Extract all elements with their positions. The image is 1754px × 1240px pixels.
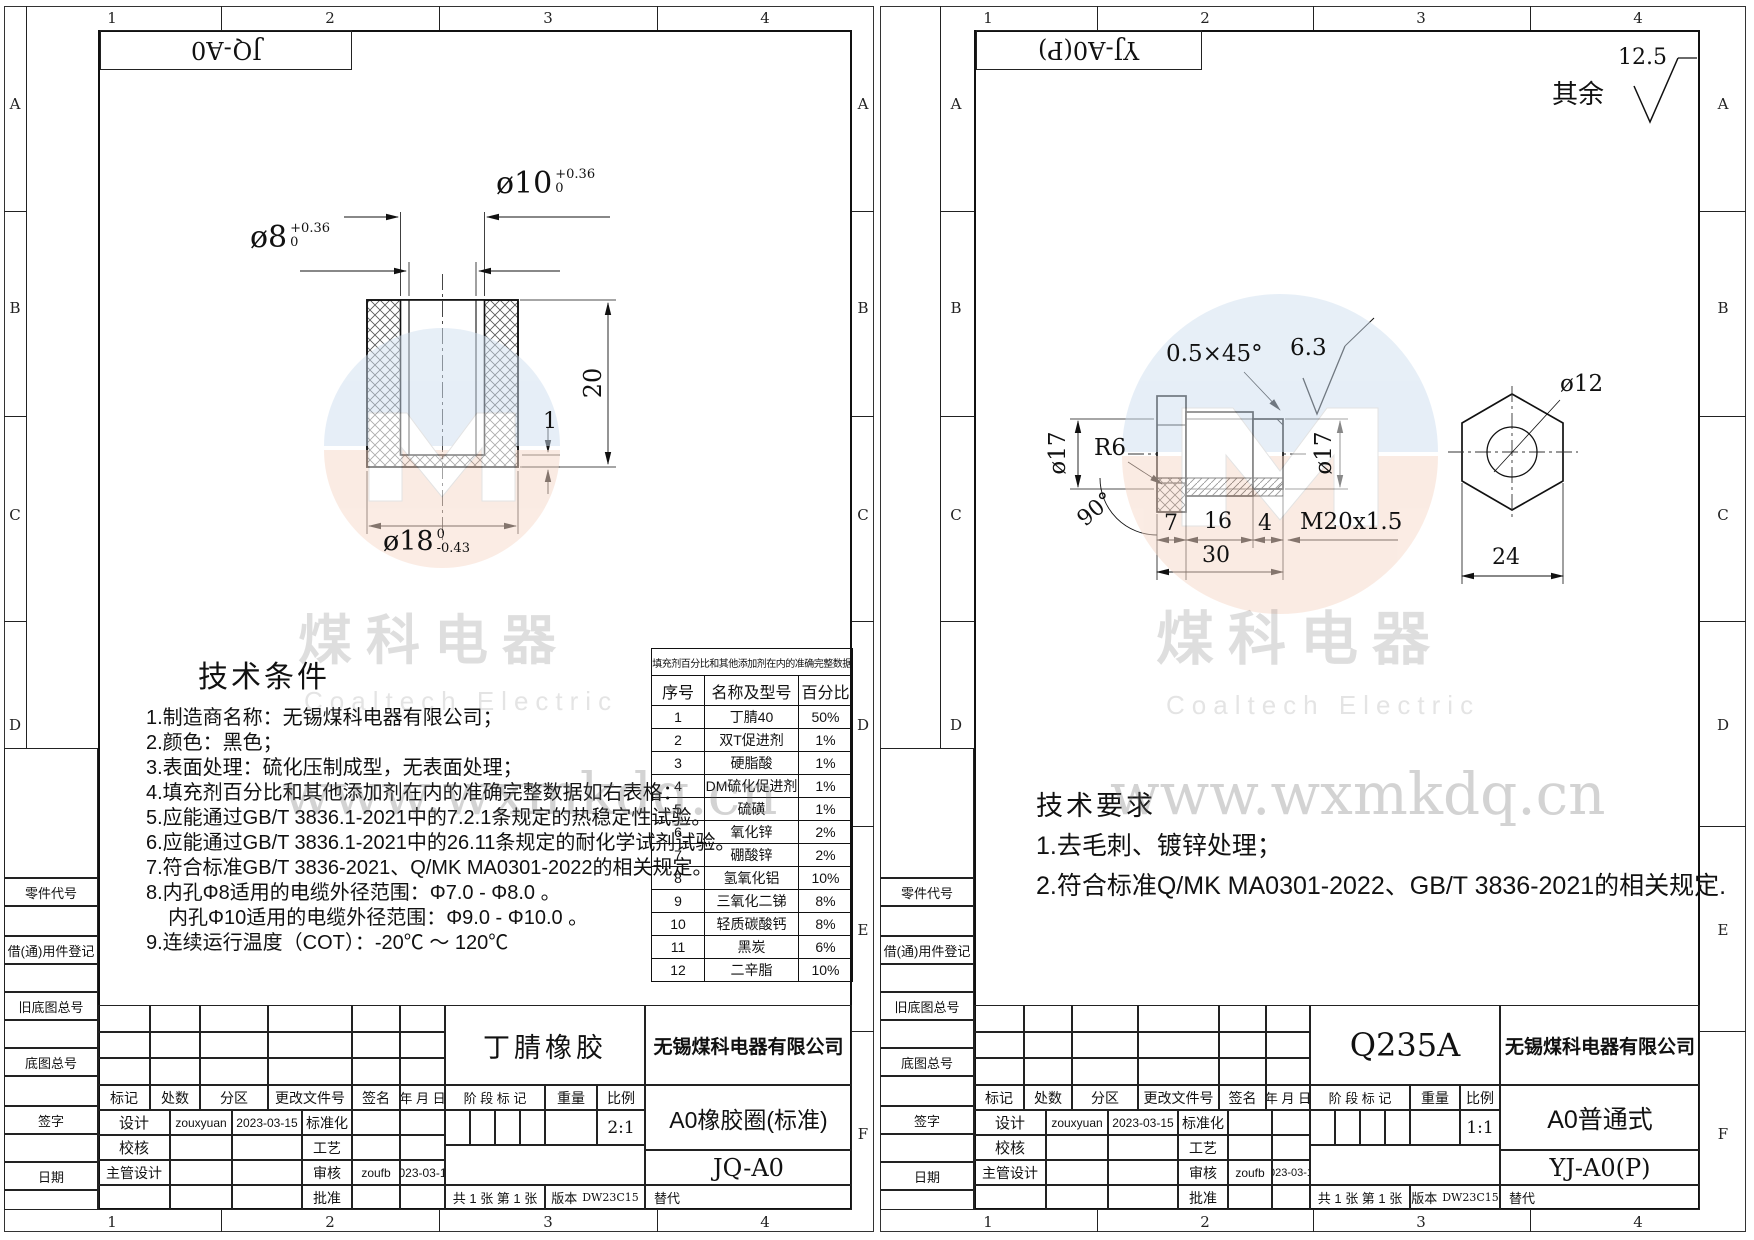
dim-r6: R6: [1094, 436, 1126, 460]
zone-tick: [439, 6, 440, 30]
dim-d18: ø18 0-0.43: [383, 528, 470, 556]
rev-header: 签名: [352, 1085, 400, 1110]
zone-col-label: 3: [538, 1212, 558, 1232]
zone-row-label: E: [853, 920, 873, 940]
sign-cell: 2023-03-15: [232, 1110, 302, 1135]
watermark-logo-en: Coaltech Electric: [304, 686, 618, 717]
rev-cell: [1219, 1032, 1266, 1058]
stage-cell: [520, 1110, 545, 1145]
sign-cell: 工艺: [1178, 1135, 1228, 1160]
sign-cell: 审核: [1178, 1160, 1228, 1185]
stage-cell: [1310, 1110, 1335, 1145]
sign-cell: [1272, 1185, 1310, 1210]
stage-cell: [445, 1110, 470, 1145]
filler-col-header: 百分比: [799, 676, 853, 706]
left-sheet-title-tab: JQ-A0: [100, 30, 352, 70]
scale-label: 比例: [1460, 1085, 1500, 1110]
sign-cell: 标准化: [302, 1110, 352, 1135]
zone-tick: [940, 211, 974, 212]
sign-cell: [352, 1185, 400, 1210]
filler-table-title: 填充剂百分比和其他添加剂在内的准确完整数据: [652, 649, 853, 676]
zone-col-label: 1: [978, 8, 998, 28]
company-name: 无锡煤科电器有限公司: [1500, 1005, 1700, 1085]
sign-cell: [1108, 1160, 1178, 1185]
rev-header: 更改文件号: [268, 1085, 352, 1110]
zone-row-label: B: [5, 298, 25, 318]
zone-row-label: D: [946, 715, 966, 735]
sign-cell: [232, 1185, 302, 1210]
sign-cell: [1228, 1135, 1272, 1160]
zone-col-label: 1: [102, 8, 122, 28]
zone-tick: [221, 1210, 222, 1232]
zone-tick: [657, 6, 658, 30]
dim-16: 16: [1204, 510, 1232, 533]
margin-box-empty: [880, 906, 974, 936]
margin-box-empty: [880, 1076, 974, 1106]
stage-cell: [1335, 1110, 1360, 1145]
watermark-site-url: www.wxmkdq.cn: [282, 760, 778, 828]
rev-cell: [98, 1032, 150, 1058]
scale-value: 1:1: [1460, 1110, 1500, 1145]
zone-col-label: 2: [320, 8, 340, 28]
rev-cell: [200, 1005, 268, 1032]
sign-cell: 校核: [98, 1135, 170, 1160]
zone-col-label: 4: [755, 8, 775, 28]
sign-cell: 设计: [974, 1110, 1046, 1135]
dim-d12: ø12: [1560, 372, 1603, 396]
weight-value: [545, 1110, 597, 1145]
zone-row-label: A: [853, 94, 873, 114]
sign-cell: [1046, 1160, 1108, 1185]
zone-row-label: A: [1713, 94, 1733, 114]
dim-7: 7: [1164, 512, 1178, 535]
margin-label-master-no: 底图总号: [880, 1048, 974, 1076]
watermark-site-url: www.wxmkdq.cn: [1110, 760, 1606, 828]
margin-label-date: 日期: [4, 1162, 98, 1190]
empty-box: [445, 1145, 645, 1185]
rev-header: 分区: [200, 1085, 268, 1110]
zone-col-label: 4: [1628, 1212, 1648, 1232]
rev-header: 处数: [1024, 1085, 1072, 1110]
zone-row-label: B: [853, 298, 873, 318]
stage-cell: [1360, 1110, 1385, 1145]
zone-tick: [1313, 1210, 1314, 1232]
drawing-sheet-pair: 1 2 3 4 1 2 3 4 A B C D A B C D E F JQ-A…: [0, 0, 1754, 1240]
stage-cell: [1385, 1110, 1410, 1145]
rev-cell: [1219, 1058, 1266, 1085]
product-name: A0橡胶圈(标准): [645, 1085, 852, 1150]
sign-cell: 2023-03-15: [1108, 1110, 1178, 1135]
zone-tick: [1313, 6, 1314, 30]
right-sheet-margin-line: [940, 6, 941, 748]
left-tab-code: JQ-A0: [191, 36, 262, 64]
filler-col-header: 名称及型号: [705, 676, 799, 706]
surface-rest-label: 其余: [1552, 74, 1604, 111]
rev-header: 更改文件号: [1138, 1085, 1219, 1110]
zone-tick: [657, 1210, 658, 1232]
rev-cell: [1266, 1032, 1310, 1058]
weight-label: 重量: [545, 1085, 597, 1110]
sign-cell: zouxyuan: [170, 1110, 232, 1135]
stage-cell: [470, 1110, 495, 1145]
empty-box: [1310, 1145, 1500, 1185]
margin-label-signature: 签字: [880, 1106, 974, 1134]
dim-roughness-6-3: 6.3: [1290, 336, 1327, 360]
table-row: 12二辛脂10%: [652, 959, 853, 982]
rev-cell: [400, 1032, 445, 1058]
sign-cell: [1046, 1185, 1108, 1210]
dim-30: 30: [1202, 544, 1230, 567]
zone-tick: [221, 6, 222, 30]
rev-cell: [268, 1005, 352, 1032]
sign-cell: 审核: [302, 1160, 352, 1185]
rev-cell: [98, 1058, 150, 1085]
zone-col-label: 2: [320, 1212, 340, 1232]
zone-tick: [4, 416, 26, 417]
sign-cell: [98, 1185, 170, 1210]
zone-col-label: 1: [978, 1212, 998, 1232]
sign-cell: 工艺: [302, 1135, 352, 1160]
margin-label-date: 日期: [880, 1162, 974, 1190]
replace-cell: 替代: [645, 1185, 852, 1210]
dim-d17-right: ø17: [1311, 423, 1337, 483]
sign-cell: [1272, 1110, 1310, 1135]
sign-cell: [1046, 1135, 1108, 1160]
zone-row-label: D: [853, 715, 873, 735]
version-cell: 版本 DW23C15: [1410, 1185, 1500, 1210]
zone-tick: [4, 621, 26, 622]
rev-cell: [352, 1058, 400, 1085]
rev-cell: [1072, 1005, 1138, 1032]
rev-cell: [1024, 1032, 1072, 1058]
sign-cell: 主管设计: [98, 1160, 170, 1185]
rev-header: 标记: [98, 1085, 150, 1110]
sign-cell: [352, 1110, 400, 1135]
sign-cell: 批准: [302, 1185, 352, 1210]
right-tab-code: YJ-A0(P): [1038, 36, 1139, 64]
rev-cell: [1138, 1005, 1219, 1032]
zone-row-label: F: [1713, 1124, 1733, 1144]
stage-cell: [495, 1110, 520, 1145]
replace-cell: 替代: [1500, 1185, 1700, 1210]
rev-cell: [268, 1058, 352, 1085]
drawing-number: YJ-A0(P): [1500, 1150, 1700, 1185]
scale-value: 2:1: [597, 1110, 645, 1145]
table-row: 10轻质碳酸钙8%: [652, 913, 853, 936]
zone-col-label: 3: [1411, 1212, 1431, 1232]
product-name: A0普通式: [1500, 1085, 1700, 1150]
sign-cell: [232, 1160, 302, 1185]
zone-row-label: C: [946, 505, 966, 525]
sign-cell: [352, 1135, 400, 1160]
rev-cell: [1024, 1058, 1072, 1085]
material-name: Q235A: [1310, 1005, 1500, 1085]
dim-web-1: 1: [543, 410, 557, 433]
zone-row-label: D: [5, 715, 25, 735]
margin-box-empty: [4, 1020, 98, 1048]
rev-cell: [200, 1032, 268, 1058]
sign-cell: [1108, 1185, 1178, 1210]
rev-cell: [1072, 1032, 1138, 1058]
rev-header: 签名: [1219, 1085, 1266, 1110]
sign-cell: [1272, 1135, 1310, 1160]
table-row: 7硼酸锌2%: [652, 844, 853, 867]
zone-tick: [852, 621, 874, 622]
zone-row-label: B: [1713, 298, 1733, 318]
sheet-count: 共 1 张 第 1 张: [1310, 1185, 1410, 1210]
rev-cell: [352, 1005, 400, 1032]
rev-cell: [974, 1032, 1024, 1058]
zone-row-label: A: [946, 94, 966, 114]
sign-cell: [1228, 1185, 1272, 1210]
stage-mark-label: 阶 段 标 记: [1310, 1085, 1410, 1110]
rev-cell: [974, 1005, 1024, 1032]
margin-label-part-code: 零件代号: [4, 878, 98, 906]
rev-cell: [400, 1058, 445, 1085]
weight-value: [1410, 1110, 1460, 1145]
zone-tick: [1530, 6, 1531, 30]
weight-label: 重量: [1410, 1085, 1460, 1110]
version-cell: 版本 DW23C15: [545, 1185, 645, 1210]
sign-cell: [400, 1135, 445, 1160]
dim-chamfer: 0.5×45°: [1166, 342, 1263, 366]
zone-col-label: 2: [1195, 8, 1215, 28]
zone-row-label: D: [1713, 715, 1733, 735]
zone-row-label: F: [853, 1124, 873, 1144]
zone-tick: [1097, 6, 1098, 30]
watermark-logo-en: Coaltech Electric: [1166, 690, 1480, 721]
rev-header: 年 月 日: [1266, 1085, 1310, 1110]
zone-tick: [1700, 1031, 1746, 1032]
sign-cell: [1228, 1110, 1272, 1135]
zone-tick: [940, 416, 974, 417]
dim-height-20: 20: [581, 355, 607, 411]
left-sheet-margin-line: [26, 6, 27, 748]
zone-row-label: E: [1713, 920, 1733, 940]
filler-col-header: 序号: [652, 676, 705, 706]
dim-thread: M20x1.5: [1300, 510, 1402, 534]
margin-label-master-no: 底图总号: [4, 1048, 98, 1076]
table-row: 11黑炭6%: [652, 936, 853, 959]
table-row: 9三氧化二锑8%: [652, 890, 853, 913]
sign-cell: 校核: [974, 1135, 1046, 1160]
zone-col-label: 4: [1628, 8, 1648, 28]
margin-box-empty: [880, 748, 974, 878]
zone-tick: [852, 826, 874, 827]
margin-box-empty: [4, 1190, 98, 1210]
margin-label-borrow-reg: 借(通)用件登记: [4, 936, 98, 964]
sign-cell: 主管设计: [974, 1160, 1046, 1185]
rev-cell: [1266, 1058, 1310, 1085]
margin-box-empty: [880, 1020, 974, 1048]
zone-row-label: C: [853, 505, 873, 525]
stage-mark-label: 阶 段 标 记: [445, 1085, 545, 1110]
zone-col-label: 4: [755, 1212, 775, 1232]
right-sheet-title-tab: YJ-A0(P): [976, 30, 1202, 70]
table-row: 2双T促进剂1%: [652, 729, 853, 752]
margin-label-old-master-no: 旧底图总号: [4, 992, 98, 1020]
zone-row-label: C: [5, 505, 25, 525]
margin-label-signature: 签字: [4, 1106, 98, 1134]
rev-cell: [150, 1005, 200, 1032]
margin-box-empty: [4, 964, 98, 992]
rev-cell: [1266, 1005, 1310, 1032]
margin-box-empty: [4, 748, 98, 878]
zone-tick: [852, 416, 874, 417]
margin-box-empty: [4, 1134, 98, 1162]
rev-cell: [1024, 1005, 1072, 1032]
zone-tick: [4, 211, 26, 212]
sign-cell: zouxyuan: [1046, 1110, 1108, 1135]
material-name: 丁腈橡胶: [445, 1005, 645, 1085]
sign-cell: 标准化: [1178, 1110, 1228, 1135]
sign-cell: [400, 1110, 445, 1135]
sign-cell: 2023-03-15: [1272, 1160, 1310, 1185]
sign-cell: zoufb: [352, 1160, 400, 1185]
rev-cell: [400, 1005, 445, 1032]
sheet-count: 共 1 张 第 1 张: [445, 1185, 545, 1210]
rev-cell: [150, 1032, 200, 1058]
zone-row-label: C: [1713, 505, 1733, 525]
margin-label-borrow-reg: 借(通)用件登记: [880, 936, 974, 964]
rev-cell: [1138, 1032, 1219, 1058]
rev-header: 年 月 日: [400, 1085, 445, 1110]
watermark-logo-cn: 煤科电器: [298, 596, 570, 675]
zone-tick: [1097, 1210, 1098, 1232]
zone-tick: [1700, 621, 1746, 622]
surface-rest-value: 12.5: [1618, 46, 1667, 69]
dim-4: 4: [1258, 512, 1272, 535]
zone-tick: [439, 1210, 440, 1232]
rev-header: 分区: [1072, 1085, 1138, 1110]
sign-cell: [170, 1160, 232, 1185]
sign-cell: 设计: [98, 1110, 170, 1135]
zone-tick: [1530, 1210, 1531, 1232]
dim-d8: ø8 +0.360: [250, 222, 330, 254]
margin-label-part-code: 零件代号: [880, 878, 974, 906]
table-row: 1丁腈4050%: [652, 706, 853, 729]
sign-cell: [974, 1185, 1046, 1210]
zone-tick: [852, 1031, 874, 1032]
tech-conditions-notes: 1.制造商名称：无锡煤科电器有限公司； 2.颜色：黑色； 3.表面处理：硫化压制…: [146, 706, 735, 956]
margin-box-empty: [4, 1076, 98, 1106]
sign-cell: 批准: [1178, 1185, 1228, 1210]
rev-cell: [150, 1058, 200, 1085]
zone-tick: [852, 211, 874, 212]
margin-box-empty: [4, 906, 98, 936]
sign-cell: 2023-03-15: [400, 1160, 445, 1185]
sign-cell: [170, 1135, 232, 1160]
company-name: 无锡煤科电器有限公司: [645, 1005, 852, 1085]
zone-row-label: A: [5, 94, 25, 114]
zone-col-label: 1: [102, 1212, 122, 1232]
rev-cell: [1138, 1058, 1219, 1085]
zone-col-label: 3: [1411, 8, 1431, 28]
table-row: 8氢氧化铝10%: [652, 867, 853, 890]
zone-tick: [1700, 211, 1746, 212]
rev-header: 处数: [150, 1085, 200, 1110]
rev-cell: [268, 1032, 352, 1058]
dim-d17-left: ø17: [1045, 423, 1071, 483]
zone-row-label: B: [946, 298, 966, 318]
zone-tick: [1700, 416, 1746, 417]
rev-cell: [1072, 1058, 1138, 1085]
sign-cell: [400, 1185, 445, 1210]
zone-tick: [940, 621, 974, 622]
watermark-logo-cn: 煤科电器: [1156, 592, 1444, 676]
sign-cell: [170, 1185, 232, 1210]
zone-col-label: 3: [538, 8, 558, 28]
rev-cell: [98, 1005, 150, 1032]
dim-24: 24: [1492, 546, 1520, 569]
drawing-number: JQ-A0: [645, 1150, 852, 1185]
rev-cell: [352, 1032, 400, 1058]
rev-cell: [1219, 1005, 1266, 1032]
sign-cell: [1108, 1135, 1178, 1160]
zone-col-label: 2: [1195, 1212, 1215, 1232]
sign-cell: zoufb: [1228, 1160, 1272, 1185]
scale-label: 比例: [597, 1085, 645, 1110]
sign-cell: [232, 1135, 302, 1160]
margin-label-old-master-no: 旧底图总号: [880, 992, 974, 1020]
tech-requirements-notes: 1.去毛刺、镀锌处理； 2.符合标准Q/MK MA0301-2022、GB/T …: [1036, 826, 1726, 906]
rev-cell: [974, 1058, 1024, 1085]
margin-box-empty: [880, 1190, 974, 1210]
dim-d10: ø10 +0.360: [496, 168, 595, 200]
rev-header: 标记: [974, 1085, 1024, 1110]
margin-box-empty: [880, 1134, 974, 1162]
rev-cell: [200, 1058, 268, 1085]
margin-box-empty: [880, 964, 974, 992]
